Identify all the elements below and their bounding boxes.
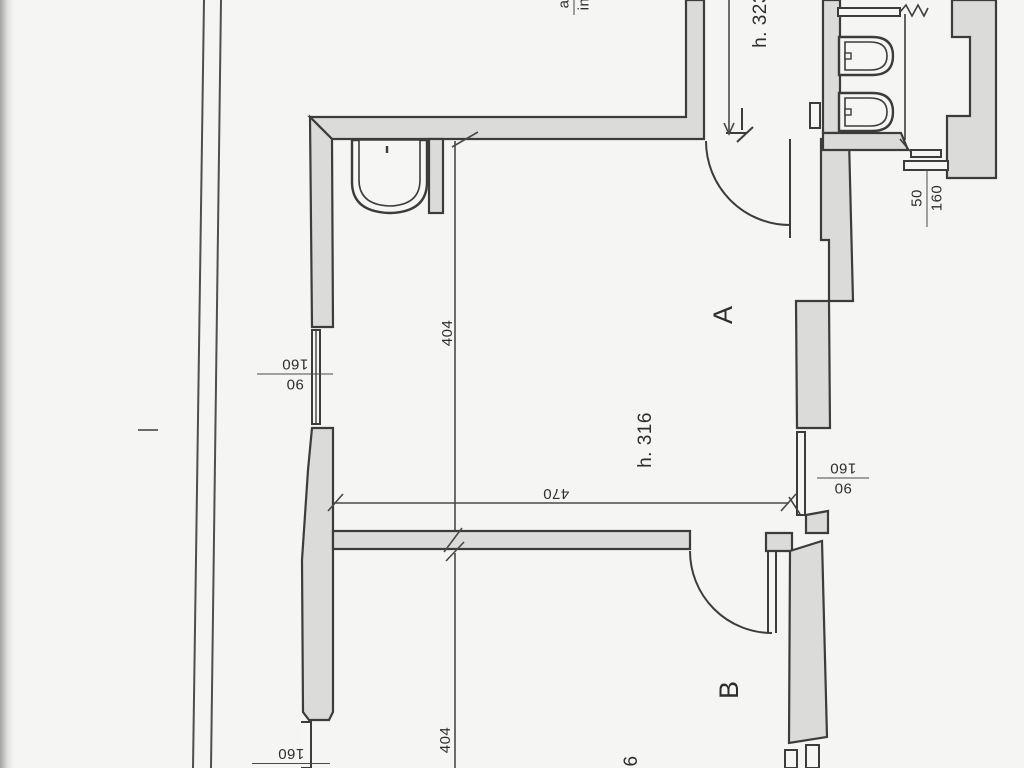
bath-window-dim: 50 160 <box>909 169 946 227</box>
room-a-height-label: h. 316 <box>636 412 656 468</box>
sink-inner <box>359 140 420 206</box>
door-a-arc <box>706 141 790 225</box>
window-b-bottom-2 <box>806 745 819 768</box>
bath-window-num: 50 <box>909 189 926 207</box>
scan-shadow-left <box>0 0 14 768</box>
floor-plan-drawing <box>0 0 1024 768</box>
bath-window-den: 160 <box>929 185 946 212</box>
window-left-dim: 90 160 <box>257 356 333 393</box>
floor-plan-page: A B h. 316 h. 323 6 404 404 470 90 160 9… <box>0 0 1024 768</box>
window-bottom-value: 160 <box>278 745 305 762</box>
partition-stub <box>429 139 443 213</box>
window-right-den: 160 <box>830 460 857 477</box>
window-left-den: 160 <box>282 356 309 373</box>
toilet-tap <box>845 53 851 59</box>
entry-label: a in <box>556 0 593 15</box>
wall-bath-right <box>947 0 996 178</box>
dimension-lines <box>328 0 796 768</box>
window-right-num: 90 <box>834 480 852 497</box>
wall-bath-divider <box>823 0 840 133</box>
window-left-dim-line <box>257 374 333 375</box>
window-bottom-dim: 160 <box>252 745 330 765</box>
property-line-1 <box>193 0 204 768</box>
wall-top <box>310 0 704 139</box>
shelf <box>838 8 900 16</box>
window-bottom-dim-line <box>252 763 330 764</box>
wall-left-lower <box>302 428 333 720</box>
dim-404-a: 404 <box>440 320 456 347</box>
property-line-2 <box>211 0 221 768</box>
door-mark-slash <box>737 127 753 142</box>
window-left-num: 90 <box>286 376 304 393</box>
room-b-label: B <box>715 681 743 699</box>
wall-right-a-stub <box>806 511 828 533</box>
wall-right-b <box>789 541 827 743</box>
wall-bath-bottom <box>823 133 908 150</box>
room-a-label: A <box>709 306 737 324</box>
dim-470: 470 <box>543 485 570 501</box>
property-lines <box>138 0 221 768</box>
bidet-tap <box>845 109 851 115</box>
radiator <box>810 103 820 128</box>
bath-window-bar-1 <box>911 150 941 157</box>
window-b-bottom-1 <box>785 750 797 768</box>
wall-right-a-mid <box>796 301 830 428</box>
door-b-arc <box>690 551 772 633</box>
entry-label-line1: a <box>556 0 573 8</box>
window-a-right <box>797 432 805 515</box>
wall-left-a-upper <box>310 117 333 327</box>
window-right-dim: 90 160 <box>817 460 869 497</box>
dim-404-b: 404 <box>438 727 454 754</box>
room-b-height-partial: 6 <box>622 755 642 766</box>
wall-divider-right-stub <box>766 533 792 551</box>
wall-divider-left <box>333 531 690 549</box>
bath-window-dim-line <box>927 169 928 227</box>
corridor-height-label: h. 323 <box>751 0 771 48</box>
wall-right-a-upper <box>821 139 853 301</box>
window-right-dim-line <box>817 478 869 479</box>
entry-label-line <box>574 0 575 15</box>
entry-label-line2: in <box>576 0 593 10</box>
